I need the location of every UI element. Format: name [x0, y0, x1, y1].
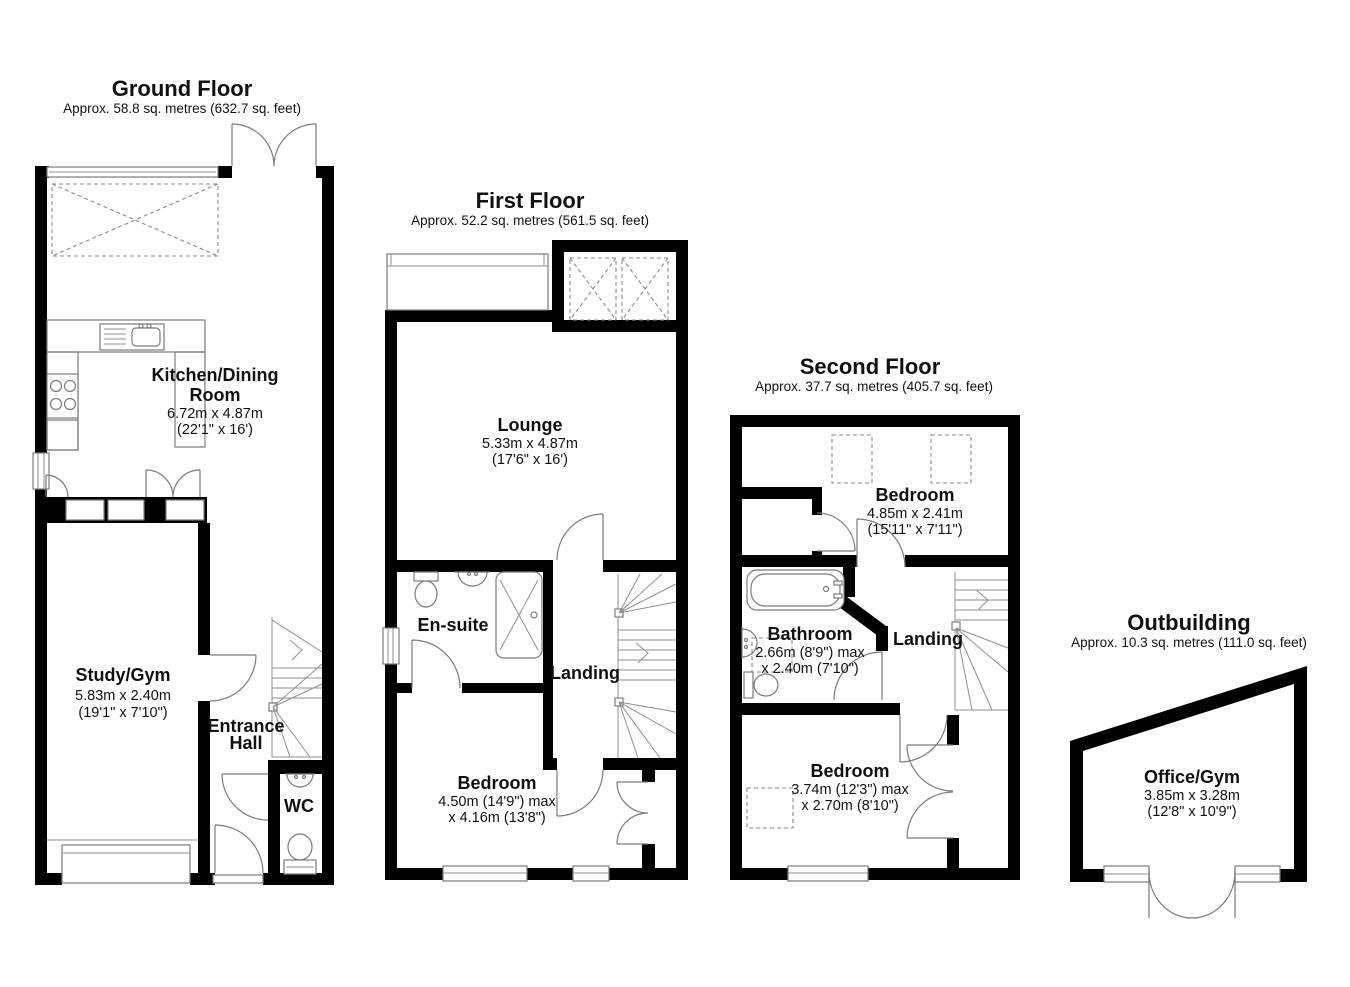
office-dims-m: 3.85m x 3.28m: [1144, 788, 1240, 804]
floorplan-canvas: Ground Floor Approx. 58.8 sq. metres (63…: [0, 0, 1350, 982]
lounge-door: [557, 514, 603, 560]
bedroom1-dims-m: 4.85m x 2.41m: [867, 506, 963, 522]
folding-doors: [46, 470, 204, 520]
ground-floor-area: Approx. 58.8 sq. metres (632.7 sq. feet): [63, 101, 301, 116]
bedroom2-dims-2: x 2.70m (8'10"): [801, 798, 898, 814]
second-floor-title: Second Floor: [800, 354, 941, 379]
juliet-window: [387, 254, 548, 310]
landing2-label: Landing: [893, 629, 963, 649]
french-doors: [232, 124, 316, 166]
kitchen-label: Kitchen/Dining: [152, 365, 279, 385]
outbuilding-window-left: [1104, 866, 1149, 882]
ensuite-label: En-suite: [417, 615, 488, 635]
first-floor-title: First Floor: [476, 188, 585, 213]
study-dims-m: 5.83m x 2.40m: [75, 688, 171, 704]
shower: [496, 572, 542, 658]
bedroom-skylights: [832, 435, 971, 483]
bay-window: [47, 840, 198, 883]
bedroom2-window: [788, 866, 868, 881]
outbuilding-plan: Outbuilding Approx. 10.3 sq. metres (111…: [1070, 610, 1307, 918]
bedroom1-dims-ft: (15'11" x 7'11"): [867, 522, 962, 538]
bedroom2-dims-1: 3.74m (12'3") max: [791, 782, 909, 798]
bathroom-dims-2: x 2.40m (7'10"): [761, 661, 858, 677]
study-dims-ft: (19'1" x 7'10"): [78, 705, 167, 721]
ground-staircase: [269, 617, 322, 757]
first-floor-area: Approx. 52.2 sq. metres (561.5 sq. feet): [411, 213, 649, 228]
second-floor-area: Approx. 37.7 sq. metres (405.7 sq. feet): [755, 379, 993, 394]
entrance-door: [213, 825, 263, 883]
kitchen-dims-m: 6.72m x 4.87m: [167, 406, 263, 422]
ensuite-toilet: [414, 572, 438, 607]
cupboard-doors: [617, 782, 648, 844]
floorplan-page: Ground Floor Approx. 58.8 sq. metres (63…: [0, 0, 1350, 982]
wc-label: WC: [284, 796, 314, 816]
bedroom-window-2: [573, 866, 609, 881]
bathroom-label: Bathroom: [768, 624, 853, 644]
ground-floor-plan: Ground Floor Approx. 58.8 sq. metres (63…: [33, 76, 334, 885]
wc-toilet: [284, 834, 316, 874]
office-dims-ft: (12'8" x 10'9"): [1147, 804, 1236, 820]
study-label: Study/Gym: [75, 665, 170, 685]
bedroom1-label: Bedroom: [875, 485, 954, 505]
office-label: Office/Gym: [1144, 767, 1240, 787]
hob: [47, 374, 78, 418]
bedroom-window-1: [443, 866, 527, 881]
wc-basin: [285, 774, 315, 787]
restricted-height-outline-2: [747, 788, 793, 828]
closet-door: [817, 513, 855, 551]
hall-door: [210, 655, 256, 701]
hall-label-2: Hall: [229, 733, 262, 753]
bedroom-dims-2: x 4.16m (13'8"): [448, 810, 545, 826]
outbuilding-area: Approx. 10.3 sq. metres (111.0 sq. feet): [1071, 635, 1307, 650]
outbuilding-window-right: [1235, 866, 1280, 882]
ensuite-window: [383, 628, 399, 664]
lounge-dims-ft: (17'6" x 16'): [492, 452, 568, 468]
bedroom-door: [557, 770, 603, 816]
airing-cupboard-doors: [907, 745, 953, 838]
ensuite-door: [412, 640, 460, 688]
bathroom-dims-1: 2.66m (8'9") max: [755, 645, 865, 661]
first-floor-plan: First Floor Approx. 52.2 sq. metres (561…: [383, 188, 688, 881]
bedroom-dims-1: 4.50m (14'9") max: [438, 794, 556, 810]
outbuilding-title: Outbuilding: [1127, 610, 1250, 635]
kitchen-window: [47, 167, 218, 177]
lounge-label: Lounge: [498, 415, 563, 435]
bathtub: [747, 570, 844, 610]
sink-unit: [100, 324, 164, 350]
bedroom2-door: [900, 715, 947, 762]
second-floor-plan: Second Floor Approx. 37.7 sq. metres (40…: [730, 354, 1020, 881]
bedroom-label: Bedroom: [457, 773, 536, 793]
first-staircase: [615, 574, 676, 758]
kitchen-dims-ft: (22'1" x 16'): [177, 422, 253, 438]
bedroom2-label: Bedroom: [810, 761, 889, 781]
landing-label: Landing: [550, 663, 620, 683]
ground-walls: [35, 166, 334, 885]
kitchen-label-2: Room: [190, 385, 241, 405]
skylight: [52, 184, 218, 256]
lounge-dims-m: 5.33m x 4.87m: [482, 436, 578, 452]
ground-floor-title: Ground Floor: [112, 76, 253, 101]
ensuite-basin: [455, 572, 489, 586]
wc-door: [222, 774, 268, 820]
